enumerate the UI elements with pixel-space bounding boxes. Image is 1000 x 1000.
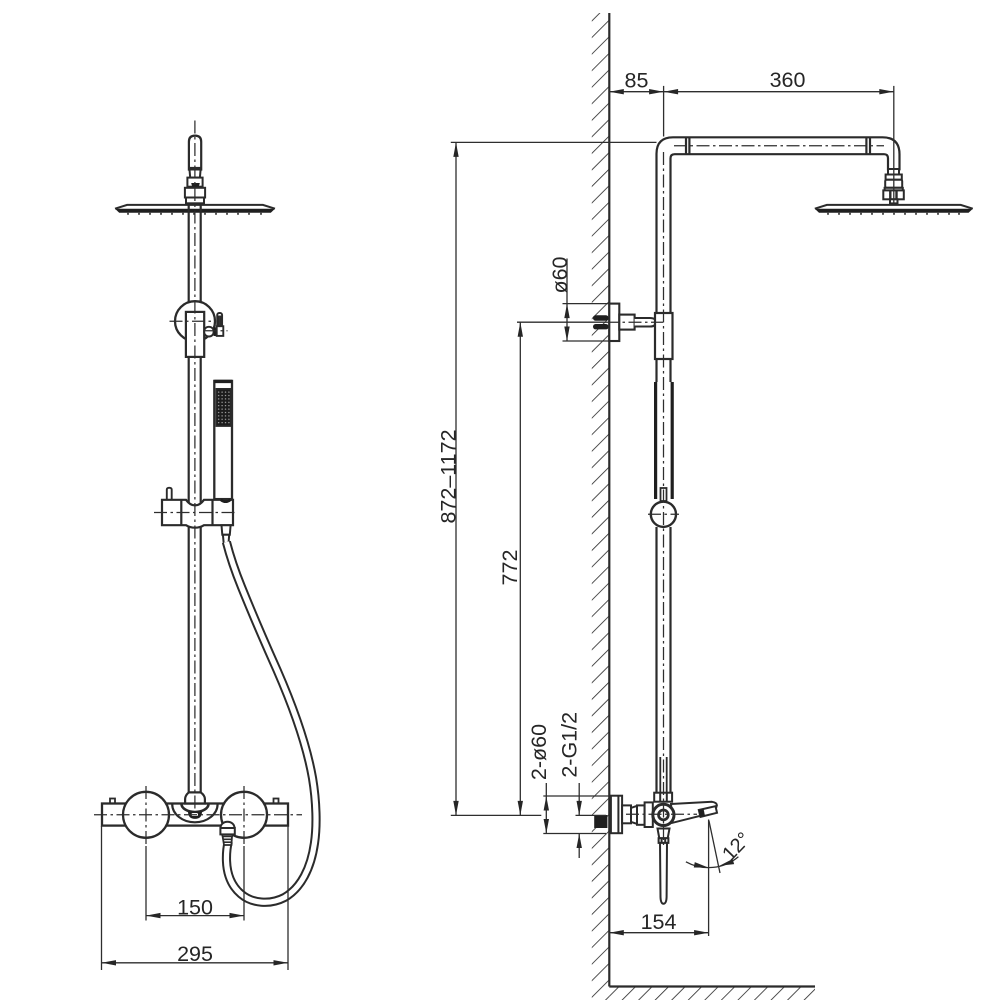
svg-text:2-ø60: 2-ø60	[527, 724, 551, 780]
svg-text:ø60: ø60	[548, 256, 572, 293]
svg-text:360: 360	[770, 68, 806, 92]
svg-text:772: 772	[498, 550, 522, 586]
svg-text:872–1172: 872–1172	[437, 429, 461, 523]
svg-text:2-G1/2: 2-G1/2	[557, 712, 581, 778]
svg-text:85: 85	[625, 69, 649, 93]
svg-text:150: 150	[177, 896, 213, 920]
svg-text:295: 295	[177, 942, 213, 966]
svg-text:154: 154	[641, 910, 677, 934]
